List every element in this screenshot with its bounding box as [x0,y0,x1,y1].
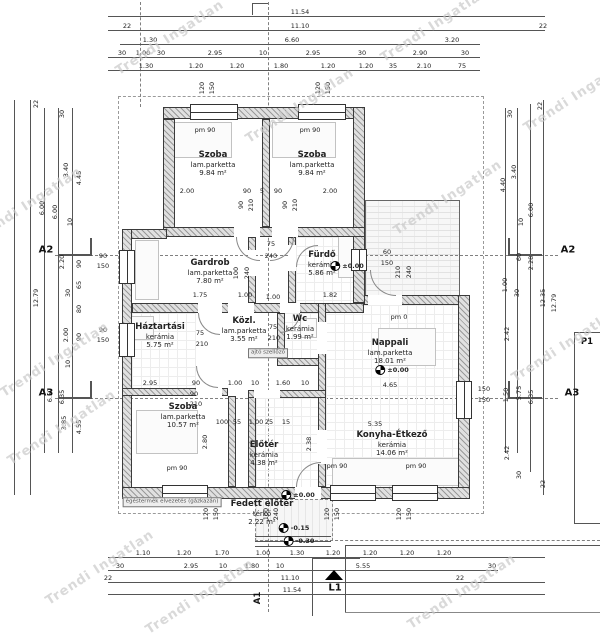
room-label: Háztartásikerámia5.75 m² [135,322,185,350]
dimension-label: 2.95 [143,380,157,387]
room-label: Előtérkerámia4.38 m² [250,440,279,468]
room-name: Háztartási [135,322,185,333]
wall-segment [228,396,236,487]
dimension-label: 1.20 [363,550,377,557]
dimension-label: 22 [33,100,40,108]
room-name: Előtér [250,440,279,451]
level-marker: -0.15 [279,523,310,533]
dimension-label: 120 [396,508,403,520]
dimension-label: pm 90 [195,127,216,134]
dimension-label: 10 [67,218,74,226]
dimension-label: 5.35 [368,421,382,428]
room-floor-material: lam.parketta [290,161,335,170]
dimension-label: 1.20 [189,63,203,70]
room-name: Gardrob [188,258,233,269]
dimension-label: 1.20 [230,63,244,70]
wall-segment [353,107,365,303]
room-floor-material: térkő [231,510,294,519]
watermark: Trendi Ingatlan [378,0,492,66]
dimension-label: 2.95 [306,50,320,57]
room-area: 5.75 m² [135,341,185,350]
room-label: Szobalam.parketta9.84 m² [191,150,236,178]
dimension-label: 150 [209,82,216,94]
window-glass-line [393,493,437,494]
dimension-line [255,546,331,547]
dimension-line [508,397,542,399]
room-floor-material: kerámia [135,333,185,342]
dimension-line [90,381,92,398]
window-glass-line [163,493,207,494]
wall-opening [317,430,327,464]
room-floor-material: kerámia [356,441,427,450]
window [119,323,135,357]
room-name: Fedett előtér [231,499,294,510]
dimension-label: 120 [324,508,331,520]
dimension-label: pm 0 [391,314,408,321]
room-floor-material: lam.parketta [161,413,206,422]
wall-opening [228,303,254,313]
dimension-label: 100 [233,267,240,279]
room-label: Wckerámia1.99 m² [286,314,314,342]
watermark: Trendi Ingatlan [43,527,157,608]
dimension-label: 35 [389,63,397,70]
wall-opening [234,227,260,237]
section-marker-a3-left: A3 [39,388,54,399]
dimension-label: 90 [238,201,245,209]
dimension-label: 240 [406,266,413,278]
room-floor-material: lam.parketta [191,161,236,170]
dimension-label: 90 [282,201,289,209]
dimension-label: 210 [268,335,280,342]
dimension-label: 75 [267,241,275,248]
wall-opening [280,303,300,313]
room-label: Nappalilam.parketta18.01 m² [368,338,413,366]
room-area: 1.99 m² [286,333,314,342]
dimension-label: 75 [269,324,277,331]
level-value: -0.30 [296,537,315,545]
window-glass-line [331,493,375,494]
dimension-label: 2.00 [180,188,194,195]
dimension-label: 1.00 [238,292,252,299]
dimension-label: 210 [395,266,402,278]
room-floor-material: lam.parketta [222,327,267,336]
dimension-label: 210 [196,341,208,348]
dimension-line [508,238,510,256]
dimension-label: 90 [192,380,200,387]
dimension-label: 120 [199,82,206,94]
dimension-label: 10 [276,563,284,570]
dimension-label: 5.75 [516,386,523,400]
wall-segment [163,119,175,237]
dimension-label: 2.28 [528,256,535,270]
dimension-label: 10 [219,563,227,570]
dimension-label: 150 [381,260,393,267]
dimension-line [14,100,15,495]
dimension-label: 60 [383,249,391,256]
room-area: 9.84 m² [191,169,236,178]
dimension-label: 1.30 [290,550,304,557]
room-area: 10.57 m² [161,421,206,430]
dimension-label: 15 [282,419,290,426]
l1-label: L1 [328,583,341,594]
window [330,485,376,501]
watermark: Trendi Ingatlan [521,54,600,135]
watermark: Trendi Ingatlan [143,556,257,637]
dimension-label: 2.80 [202,435,209,449]
dimension-label: 90 [243,188,251,195]
window-glass-line [127,251,128,283]
furniture-outline [332,458,462,486]
window-glass-line [464,382,465,418]
level-symbol-icon [279,523,289,533]
dimension-label: 100 [216,419,228,426]
dimension-label: 30 [461,50,469,57]
dimension-label: 1.00 [266,294,280,301]
dimension-label: 1.00 [256,550,270,557]
dimension-label: 25 [265,419,273,426]
room-name: Közl. [222,316,267,327]
window-glass-line [191,112,237,113]
wall-opening [198,303,222,313]
dimension-label: 2.42 [504,327,511,341]
dimension-label: 2.38 [306,437,313,451]
window-glass-line [127,324,128,356]
dimension-label: 5 [260,188,264,195]
dimension-label: 1.75 [193,292,207,299]
window [190,104,238,120]
dimension-label: 10 [259,50,267,57]
l1-triangle-icon [325,570,343,580]
dimension-label: 1.82 [323,292,337,299]
dimension-line [312,558,360,559]
dimension-label: 80 [76,305,83,313]
dimension-line [345,545,346,612]
dimension-label: 11.54 [283,587,302,594]
watermark: Trendi Ingatlan [0,319,112,400]
dimension-label: 12.79 [33,289,40,308]
dimension-label: 22 [539,23,547,30]
level-value: ±0.00 [387,366,408,374]
dimension-line [108,594,545,595]
dimension-label: 30 [65,289,72,297]
window [456,381,472,419]
wall-opening [196,388,222,396]
dimension-label: ajtó szellőző [248,348,288,358]
level-marker: ±0.00 [330,261,363,271]
room-name: Konyha-Étkező [356,430,427,441]
dimension-label: pm 90 [167,465,188,472]
dimension-label: 22 [456,575,464,582]
dimension-label: 1.50 [503,388,510,402]
room-name: Fürdő [308,250,336,261]
dimension-label: 2.10 [417,63,431,70]
level-value: ±0.00 [293,491,314,499]
dimension-label: 150 [478,397,490,404]
dimension-label: 1.20 [359,63,373,70]
dimension-label: 240 [265,253,277,260]
dimension-label: 5.55 [356,563,370,570]
dimension-label: 1.00 [228,380,242,387]
section-marker-a3-right: A3 [565,388,580,399]
dimension-label: 75 [458,63,466,70]
dimension-label: 90 [99,253,107,260]
dimension-label: 6.60 [285,37,299,44]
room-name: Szoba [191,150,236,161]
level-value: -0.15 [291,524,310,532]
room-label: Gardroblam.parketta7.80 m² [188,258,233,286]
dimension-label: 150 [334,508,341,520]
wall-opening [317,322,327,354]
dimension-label: 1.20 [326,550,340,557]
boundary-dashed-line [330,540,600,541]
window [119,250,135,284]
p1-outline [574,332,600,524]
room-name: Szoba [161,402,206,413]
dimension-label: 6.35 [59,390,66,404]
floor-plan-canvas: A2 A2 A3 A3 P1 L1 A1 11.542211.10221.306… [0,0,600,616]
dimension-label: 12.35 [540,289,547,308]
room-label: Szobalam.parketta9.84 m² [290,150,335,178]
room-area: 3.55 m² [222,335,267,344]
dimension-label: 150 [97,263,109,270]
dimension-label: 2.95 [208,50,222,57]
dimension-label: 75 [196,330,204,337]
furniture-outline [135,240,159,300]
room-label: Szobalam.parketta10.57 m² [161,402,206,430]
dimension-label: 12.79 [551,294,558,313]
dimension-label: 30 [507,110,514,118]
dimension-line [508,254,542,256]
dimension-label: 2.42 [504,446,511,460]
watermark: Trendi Ingatlan [113,0,227,79]
room-floor-material: kerámia [286,325,314,334]
window-glass-line [299,112,345,113]
window [392,485,438,501]
wall-opening [272,227,298,237]
dimension-label: 1.00 [502,278,509,292]
dimension-line [108,570,498,571]
room-label: Konyha-Étkezőkerámia14.06 m² [356,430,427,458]
dimension-label: 1.20 [400,550,414,557]
room-name: Szoba [290,150,335,161]
dimension-label: 90 [274,188,282,195]
dimension-label: 150 [213,508,220,520]
dimension-label: 210 [292,199,299,211]
dimension-label: 210 [248,199,255,211]
dimension-label: 3.20 [445,37,459,44]
room-label: Közl.lam.parketta3.55 m² [222,316,267,344]
a1-label-rotated: A1 [253,592,263,605]
dimension-label: 1.70 [215,550,229,557]
room-name: Wc [286,314,314,325]
dimension-label: pm 90 [300,127,321,134]
room-floor-material: kerámia [250,451,279,460]
dimension-label: pm 90 [327,463,348,470]
wall-opening [254,390,280,398]
dimension-label: 2.00 [323,188,337,195]
room-area: 7.80 m² [188,277,233,286]
level-marker: ±0.00 [375,365,408,375]
level-marker: -0.30 [284,536,315,546]
dimension-label: 22 [540,480,547,488]
dimension-line [517,108,518,453]
dimension-label: 150 [406,508,413,520]
level-symbol-icon [330,261,340,271]
dimension-label: 6.00 [52,205,59,219]
dimension-label: égéstermék elvezetés (gázkazán) [123,497,222,507]
dimension-label: 30 [59,110,66,118]
level-symbol-icon [284,536,294,546]
dimension-label: 2.95 [184,563,198,570]
dimension-label: 30 [516,471,523,479]
dimension-label: 4.40 [500,178,507,192]
dimension-label: 60 [516,253,523,261]
dimension-label: 11.54 [291,9,310,16]
dimension-label: 1.80 [274,63,288,70]
dimension-label: 90 [190,391,198,398]
dimension-label: 4.65 [383,382,397,389]
dimension-line [108,70,480,71]
dimension-label: 240 [244,267,251,279]
dimension-label: 2.90 [413,50,427,57]
dimension-label: 30 [118,50,126,57]
dimension-label: 6.00 [528,203,535,217]
dimension-label: 6.35 [528,390,535,404]
dimension-label: pm 90 [406,463,427,470]
dimension-label: 11.10 [281,575,300,582]
dimension-label: 30 [514,289,521,297]
dimension-label: 1.20 [437,550,451,557]
dimension-label: 30 [358,50,366,57]
dimension-label: 1.20 [177,550,191,557]
dimension-label: 1.60 [276,380,290,387]
level-symbol-icon [281,490,291,500]
level-value: ±0.00 [342,262,363,270]
dimension-label: 2.00 [63,328,70,342]
dimension-label: 2.20 [59,255,66,269]
level-symbol-icon [375,365,385,375]
section-marker-a2-left: A2 [39,245,54,256]
dimension-label: 1.00 [249,419,263,426]
dimension-line [345,545,600,546]
dimension-label: 150 [478,386,490,393]
room-area: 14.06 m² [356,449,427,458]
dimension-label: 10 [518,218,525,226]
dimension-label: 65 [76,281,83,289]
dimension-line [108,57,480,58]
dimension-label: 1.20 [321,63,335,70]
dimension-label: 90 [76,260,83,268]
dimension-line [90,238,92,256]
dimension-line [252,3,253,15]
dimension-label: 22 [123,23,131,30]
dimension-label: 10 [301,380,309,387]
dimension-label: 55 [233,419,241,426]
wall-opening [368,295,402,305]
room-area: 4.38 m² [250,459,279,468]
dimension-label: 3.40 [511,165,518,179]
room-name: Nappali [368,338,413,349]
dimension-label: 120 [203,508,210,520]
level-marker: ±0.00 [281,490,314,500]
dimension-label: 11.10 [291,23,310,30]
dimension-label: 22 [104,575,112,582]
dimension-line [312,558,313,616]
room-floor-material: lam.parketta [368,349,413,358]
dimension-line [252,3,268,4]
wall-segment [163,227,365,237]
dimension-label: 10 [251,380,259,387]
section-marker-a2-right: A2 [561,245,576,256]
room-floor-material: lam.parketta [188,269,233,278]
dimension-line [72,108,73,453]
room-area: 9.84 m² [290,169,335,178]
dimension-line [530,104,531,472]
dimension-line [108,16,545,17]
